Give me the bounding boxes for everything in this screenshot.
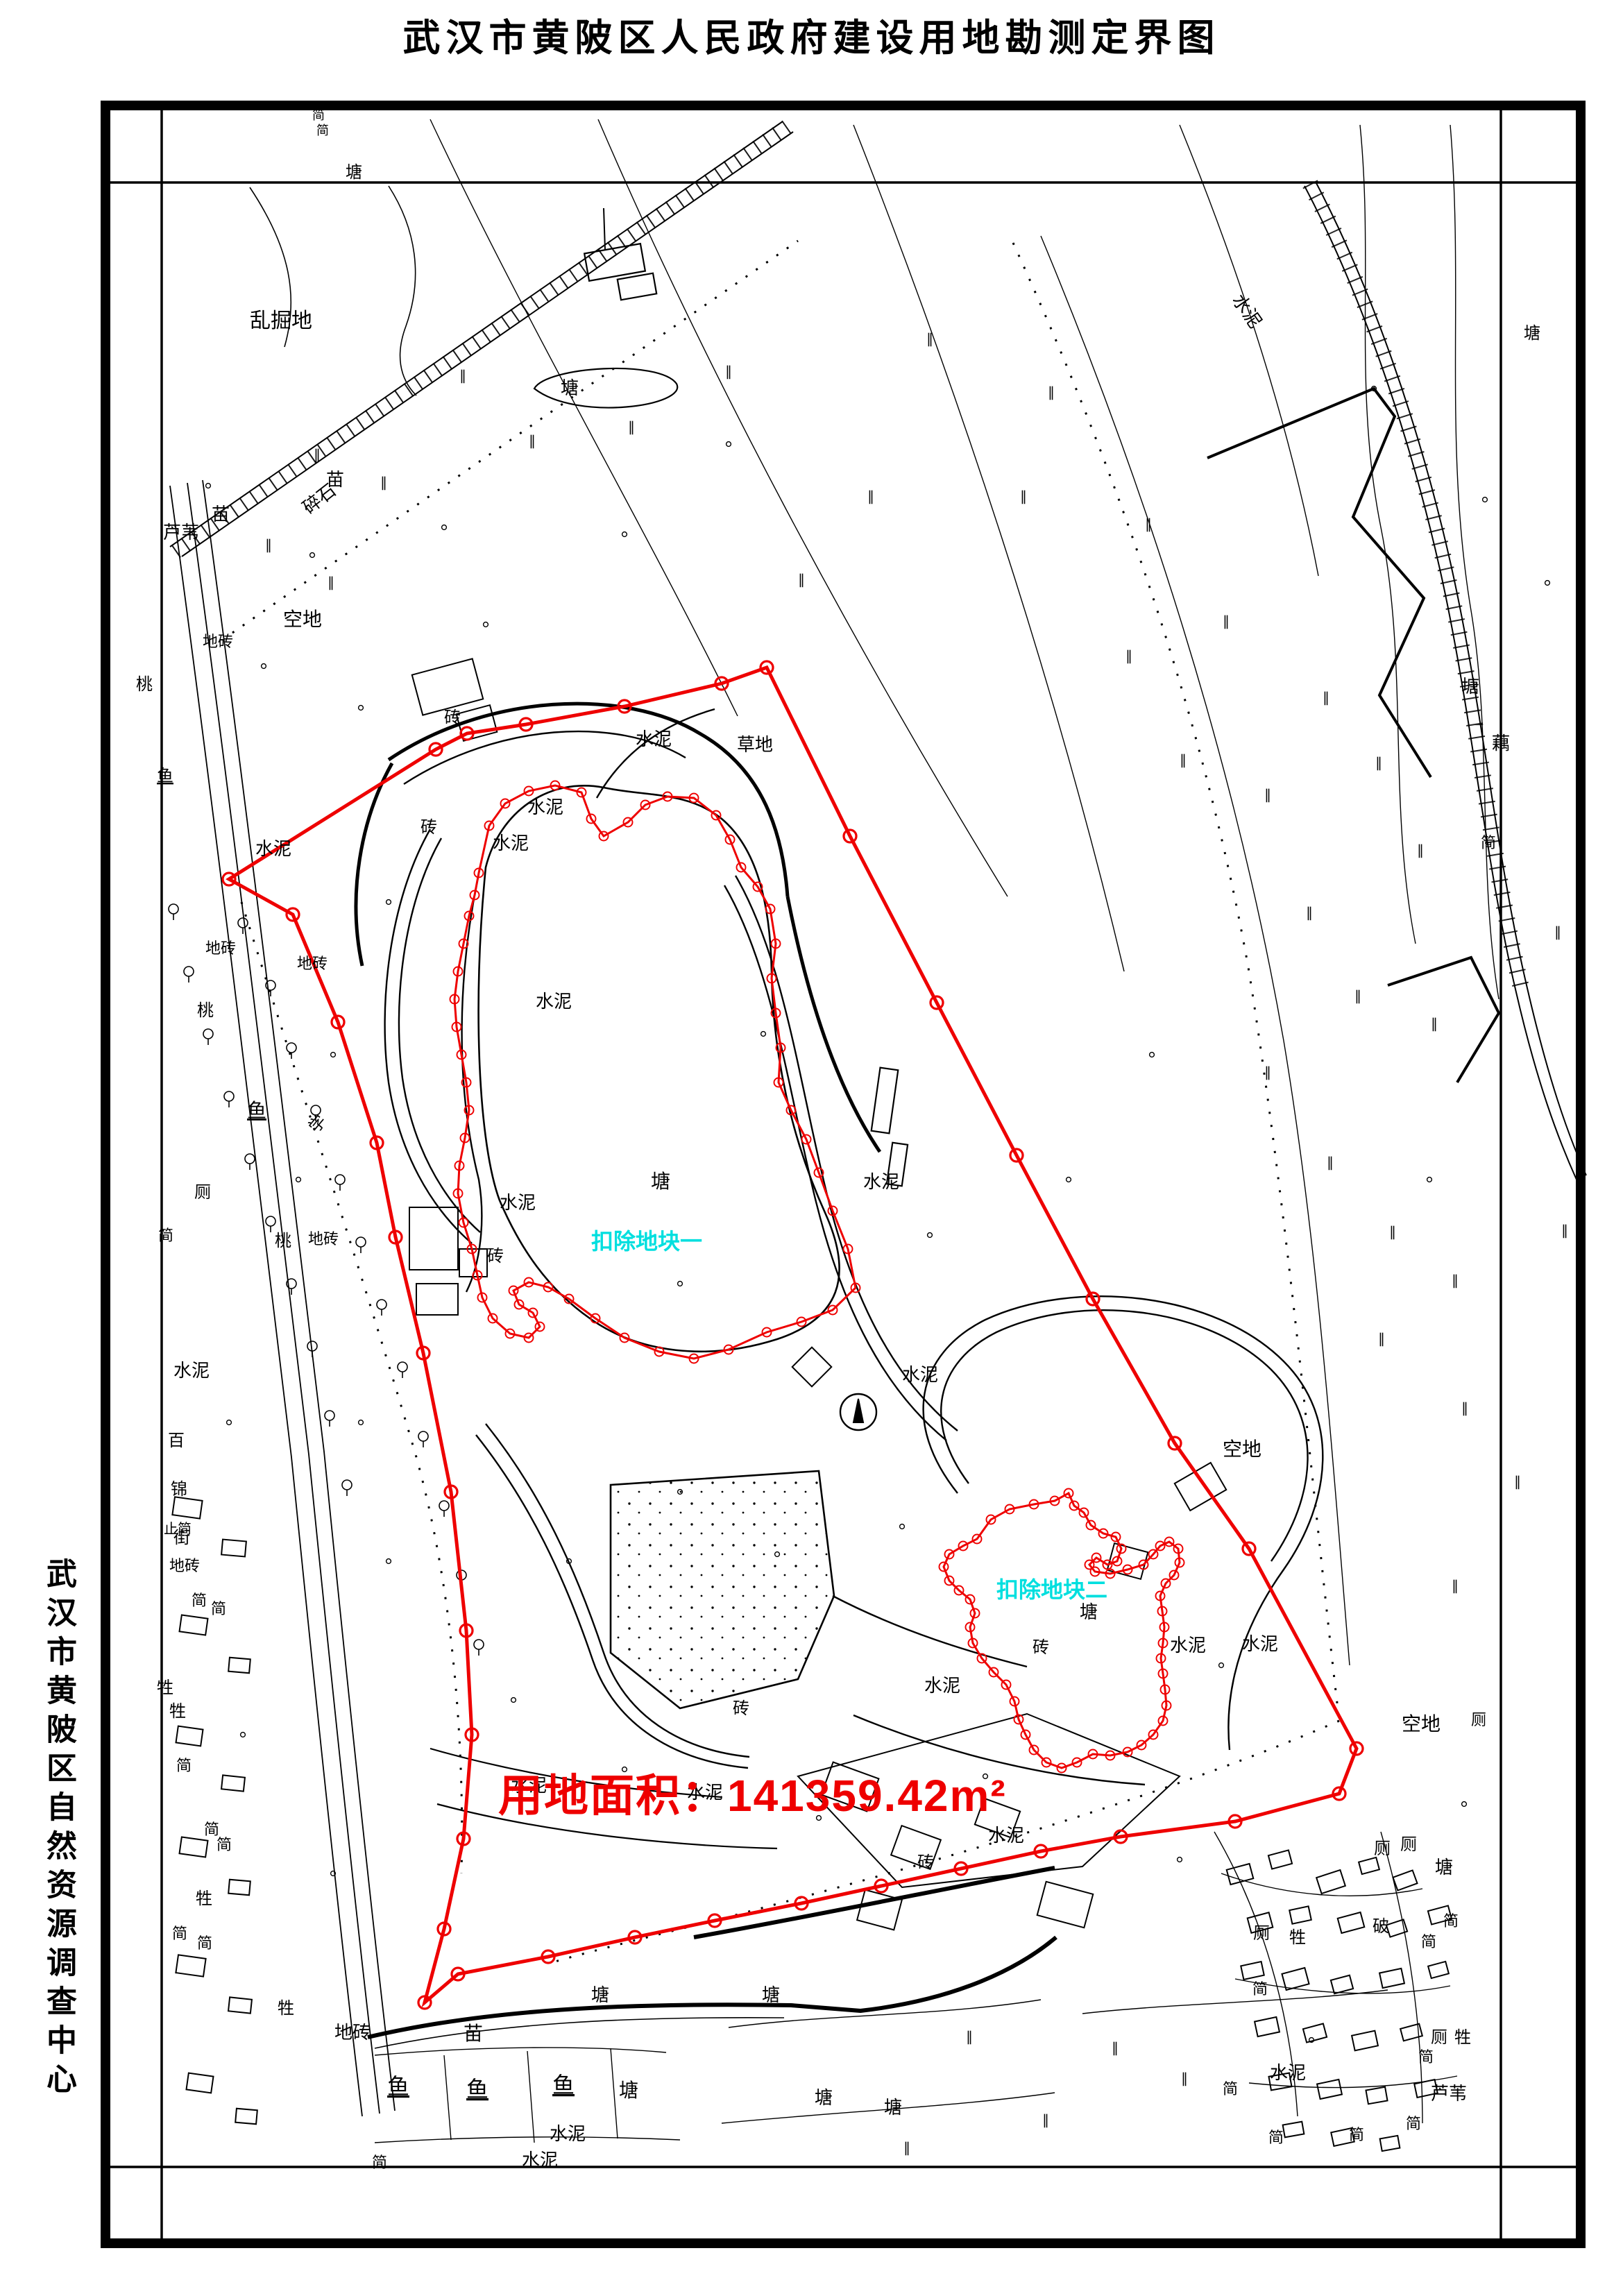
building-footprint <box>1393 1870 1417 1890</box>
tree-icon <box>203 1029 213 1039</box>
tree-icon <box>377 1300 386 1309</box>
grass-symbol-icon: ∥ <box>1323 690 1329 706</box>
map-label: 空地 <box>1223 1438 1261 1460</box>
map-label: 水泥 <box>636 729 672 749</box>
elevation-dot <box>359 706 364 711</box>
map-label: 牲 <box>169 1702 186 1721</box>
tree-icon <box>335 1175 345 1184</box>
building-footprint <box>1380 2136 1400 2151</box>
building-footprint <box>1303 2023 1327 2042</box>
map-label: 乱掘地 <box>250 309 312 332</box>
elevation-dot <box>761 1032 766 1037</box>
map-label: 水泥 <box>493 833 529 853</box>
grass-symbol-icon: ∥ <box>1461 1401 1468 1416</box>
building-footprint <box>1282 1968 1309 1990</box>
excluded-parcel-1-boundary <box>454 785 856 1359</box>
map-label: 水泥 <box>500 1192 536 1213</box>
building-footprint <box>1268 1850 1292 1869</box>
map-label: 简 <box>1268 2129 1284 2146</box>
map-label: 塘 <box>651 1171 670 1192</box>
map-label: 水泥 <box>1170 1635 1206 1656</box>
map-label: 塘 <box>1080 1601 1098 1622</box>
map-label: 简 <box>1223 2080 1238 2098</box>
elevation-dot <box>1178 1857 1182 1862</box>
map-label: 塘 <box>346 163 362 182</box>
map-label: 牲 <box>1454 2028 1471 2047</box>
map-label: 砖 <box>1033 1638 1049 1657</box>
elevation-dot <box>622 532 627 537</box>
map-label: 简 <box>1252 1980 1268 1998</box>
map-label: 简 <box>316 124 329 137</box>
elevation-dot <box>1219 1663 1224 1668</box>
building-footprint <box>228 1880 250 1896</box>
grass-symbol-icon: ∥ <box>1042 2113 1049 2128</box>
grass-symbol-icon: ∥ <box>1125 649 1132 664</box>
map-label: 厕 <box>194 1183 211 1202</box>
map-label: 鱼 <box>466 2077 488 2102</box>
map-label: 水泥 <box>902 1364 938 1385</box>
grass-symbol-icon: ∥ <box>1417 843 1424 858</box>
grass-symbol-icon: ∥ <box>1561 1223 1568 1239</box>
elevation-dot <box>296 1177 301 1182</box>
map-label: 水泥 <box>924 1675 960 1696</box>
trees-layer <box>169 904 484 1656</box>
building-footprint <box>235 2109 257 2125</box>
building-footprint <box>1316 1870 1345 1894</box>
tree-icon <box>287 1043 296 1053</box>
map-label: 简 <box>192 1592 207 1609</box>
tree-icon <box>266 1216 275 1226</box>
map-label: 简 <box>197 1934 212 1952</box>
building-footprint <box>228 1997 252 2013</box>
elevation-dot <box>1545 581 1550 586</box>
building-footprint <box>172 1497 202 1518</box>
grass-symbol-icon: ∥ <box>380 475 387 491</box>
grass-symbol-icon: ∥ <box>798 572 805 588</box>
tree-icon <box>238 918 248 928</box>
building-footprint <box>176 1726 203 1746</box>
tree-icon <box>342 1480 352 1490</box>
tree-icon <box>398 1362 407 1372</box>
survey-map: ∥∥∥∥∥∥∥∥∥∥∥∥∥∥∥∥∥∥∥∥∥∥∥∥∥∥∥∥∥∥∥∥∥∥∥∥∥∥∥ … <box>0 0 1623 2296</box>
map-label: 塘 <box>762 1984 780 2005</box>
map-label: 学 <box>305 1112 330 1137</box>
map-label: 简 <box>1349 2126 1364 2143</box>
map-labels-layer: 乱掘地简简塘塘苗苗碎石芦苇空地水泥塘塘藕简砖水泥草地水泥水泥砖水泥水泥塘水泥砖水… <box>136 108 1540 2171</box>
grass-symbol-icon: ∥ <box>1327 1155 1334 1171</box>
map-label: 水泥 <box>1228 290 1266 332</box>
map-label: 破 <box>1373 1917 1389 1936</box>
map-label: 简 <box>312 108 325 122</box>
map-label: 地砖 <box>203 633 233 650</box>
map-label: 简 <box>1421 1933 1436 1950</box>
grass-symbol-icon: ∥ <box>328 575 334 590</box>
elevation-dot <box>511 1698 516 1703</box>
elevation-dot <box>310 553 315 558</box>
map-label: 塘 <box>1524 324 1540 343</box>
grass-symbol-icon: ∥ <box>867 489 874 504</box>
map-label: 水泥 <box>522 2150 558 2170</box>
grass-symbol-icon: ∥ <box>1554 925 1561 940</box>
elevation-dot <box>1150 1053 1155 1057</box>
elevation-dot <box>442 525 447 530</box>
map-label: 水泥 <box>173 1360 210 1381</box>
map-label: 水泥 <box>863 1171 899 1192</box>
map-label: 地砖 <box>205 939 236 957</box>
map-label: 砖 <box>444 708 461 727</box>
map-label: 苗 <box>212 504 230 525</box>
map-label: 桃 <box>197 1001 214 1020</box>
elevation-dot <box>227 1420 232 1425</box>
grass-symbol-icon: ∥ <box>628 420 635 435</box>
building-footprint <box>228 1658 250 1674</box>
grass-symbol-icon: ∥ <box>1048 385 1055 400</box>
grass-symbol-icon: ∥ <box>314 448 321 463</box>
elevation-dot <box>262 664 266 669</box>
map-label: 塘 <box>884 2097 902 2118</box>
grass-symbol-icon: ∥ <box>1223 614 1230 629</box>
elevation-dot <box>1462 1802 1467 1807</box>
map-label: 鱼 <box>552 2073 575 2098</box>
building-footprint <box>1366 2087 1387 2104</box>
map-label: 鱼 <box>247 1100 266 1121</box>
elevation-dot <box>386 900 391 905</box>
tree-icon <box>224 1091 234 1101</box>
grass-symbol-icon: ∥ <box>1264 1065 1271 1080</box>
map-label: 地砖 <box>169 1557 200 1574</box>
elevation-dot <box>1067 1177 1071 1182</box>
map-label: 水泥 <box>988 1825 1024 1846</box>
grass-symbol-icon: ∥ <box>725 364 732 380</box>
map-label: 简 <box>172 1925 187 1942</box>
map-label: 水泥 <box>1270 2062 1306 2083</box>
map-label: 空地 <box>1402 1713 1441 1735</box>
elevation-dot <box>678 1282 683 1286</box>
elevation-dot <box>241 1733 246 1737</box>
map-label: 简 <box>1418 2048 1434 2066</box>
elevation-dot <box>331 1053 336 1057</box>
map-label: 草地 <box>737 734 773 755</box>
tree-icon <box>169 904 178 914</box>
map-label: 水泥 <box>255 838 291 859</box>
map-label: 塘 <box>815 2087 833 2108</box>
map-label: 简 <box>372 2154 387 2171</box>
building-footprint <box>1379 1968 1404 1988</box>
map-label: 苗 <box>464 2023 483 2044</box>
building-footprint <box>1283 2122 1305 2138</box>
map-label: 水泥 <box>1242 1633 1278 1654</box>
elevation-dot <box>1483 498 1488 502</box>
building-footprint <box>1359 1857 1379 1874</box>
map-label: 藕 <box>1492 733 1510 754</box>
map-label: 厕 <box>1431 2028 1447 2047</box>
building-footprint <box>221 1775 245 1791</box>
map-label: 桃 <box>275 1232 291 1250</box>
building-footprint <box>1317 2080 1342 2099</box>
building-footprint <box>1037 1882 1094 1928</box>
grass-symbol-icon: ∥ <box>1389 1225 1396 1240</box>
tree-icon <box>245 1154 255 1164</box>
map-label: 百 <box>168 1431 185 1450</box>
grass-symbol-icon: ∥ <box>1112 2041 1119 2056</box>
grass-symbol-icon: ∥ <box>1378 1332 1385 1347</box>
grass-symbol-icon: ∥ <box>1306 905 1313 921</box>
map-label: 砖 <box>917 1853 934 1872</box>
map-label: 简 <box>158 1227 173 1244</box>
building-footprint <box>180 1615 208 1635</box>
map-label: 水泥 <box>550 2123 586 2144</box>
map-label: 塘 <box>591 1984 609 2005</box>
map-label: 厕 <box>1400 1835 1417 1854</box>
map-label: 牲 <box>196 1889 212 1908</box>
building-footprint <box>1338 1912 1365 1933</box>
grass-symbol-icon: ∥ <box>966 2030 973 2045</box>
map-label: 地砖 <box>297 955 328 972</box>
grass-symbol-icon: ∥ <box>1020 489 1027 504</box>
grass-symbol-icon: ∥ <box>1264 788 1271 803</box>
map-frame <box>105 105 1581 2243</box>
tree-icon <box>184 967 194 976</box>
elevation-dot <box>726 442 731 447</box>
map-label: 塘 <box>1435 1857 1453 1878</box>
elevation-dot <box>386 1559 391 1564</box>
map-label: 简 <box>216 1836 232 1853</box>
map-label: 简 <box>1406 2115 1421 2132</box>
grass-symbol-icon: ∥ <box>1375 756 1382 771</box>
map-label: 简 <box>211 1600 226 1617</box>
map-label: 塘 <box>1461 676 1479 697</box>
grass-symbol-icon: ∥ <box>1452 1273 1459 1289</box>
map-label: 芦苇 <box>1431 2083 1467 2104</box>
exclusion-parcel-label-1: 扣除地块一 <box>591 1229 702 1254</box>
elevation-dot <box>359 1420 364 1425</box>
building-footprint <box>1255 2017 1280 2036</box>
grass-symbol-icon: ∥ <box>1145 517 1152 532</box>
map-label: 锦 <box>171 1480 187 1499</box>
map-label: 厕 <box>1253 1924 1270 1943</box>
building-footprint <box>1428 1962 1449 1978</box>
map-label: 砖 <box>733 1699 749 1718</box>
map-label: 塘 <box>561 377 579 398</box>
map-label: 芦苇 <box>163 522 199 543</box>
map-label: 简 <box>1481 834 1496 851</box>
map-label: 厕 <box>1374 1839 1391 1858</box>
elevation-dot <box>484 622 488 627</box>
map-label: 水泥 <box>527 797 563 817</box>
grass-symbol-icon: ∥ <box>459 368 466 384</box>
tree-icon <box>356 1237 366 1247</box>
grass-symbol-icon: ∥ <box>1452 1579 1459 1594</box>
tree-icon <box>418 1431 428 1441</box>
building-footprint <box>1352 2031 1378 2051</box>
map-label: 空地 <box>283 609 322 630</box>
map-label: 塘 <box>619 2080 638 2101</box>
building-footprint <box>1289 1906 1311 1923</box>
map-label: 牲 <box>157 1678 173 1697</box>
building-footprint <box>412 658 483 715</box>
grass-symbol-icon: ∥ <box>903 2141 910 2156</box>
building-footprint <box>1241 1962 1264 1980</box>
building-footprint <box>187 2073 214 2093</box>
building-footprint <box>1331 1975 1353 1994</box>
tree-icon <box>325 1411 334 1420</box>
building-footprint <box>857 1890 902 1930</box>
building-footprint <box>176 1955 205 1976</box>
building-footprint <box>1227 1864 1254 1885</box>
tree-icon <box>439 1501 449 1511</box>
map-label: 鱼 <box>387 2074 409 2099</box>
building-footprint <box>416 1284 458 1315</box>
map-label: 水泥 <box>536 991 572 1012</box>
building-footprint <box>180 1837 208 1857</box>
building-footprint <box>792 1347 832 1387</box>
map-label: 牲 <box>278 1999 294 2018</box>
land-area-label: 用地面积：141359.42m² <box>498 1771 1007 1821</box>
building-footprint <box>409 1207 458 1270</box>
map-label: 简 <box>1443 1912 1459 1930</box>
elevation-dot <box>900 1524 905 1529</box>
elevation-dot <box>1427 1177 1432 1182</box>
grass-symbol-icon: ∥ <box>529 434 536 449</box>
map-label: 止简 <box>164 1521 192 1537</box>
grass-symbol-icon: ∥ <box>1514 1474 1521 1490</box>
grass-symbol-icon: ∥ <box>926 332 933 347</box>
map-label: 砖 <box>487 1247 504 1266</box>
map-label: 砖 <box>420 818 437 837</box>
grass-symbol-icon: ∥ <box>1354 989 1361 1004</box>
grass-symbols-layer: ∥∥∥∥∥∥∥∥∥∥∥∥∥∥∥∥∥∥∥∥∥∥∥∥∥∥∥∥∥∥∥∥∥∥∥∥∥∥∥ <box>265 332 1568 2156</box>
elevation-dot <box>206 484 211 488</box>
grass-symbol-icon: ∥ <box>1181 2071 1188 2086</box>
elevation-dot <box>928 1233 933 1238</box>
map-label: 地砖 <box>334 2022 371 2043</box>
exclusion-parcel-label-2: 扣除地块二 <box>996 1577 1107 1602</box>
map-label: 牲 <box>1289 1928 1306 1947</box>
map-label: 简 <box>176 1757 192 1774</box>
map-label: 厕 <box>1471 1711 1486 1728</box>
map-label: 鱼 <box>157 767 173 785</box>
grass-symbol-icon: ∥ <box>1431 1017 1438 1032</box>
map-label: 地砖 <box>308 1230 339 1248</box>
tree-icon <box>474 1640 484 1649</box>
grass-symbol-icon: ∥ <box>265 538 272 553</box>
grass-symbol-icon: ∥ <box>1180 753 1187 768</box>
map-label: 桃 <box>136 675 153 694</box>
building-footprint <box>221 1540 246 1557</box>
